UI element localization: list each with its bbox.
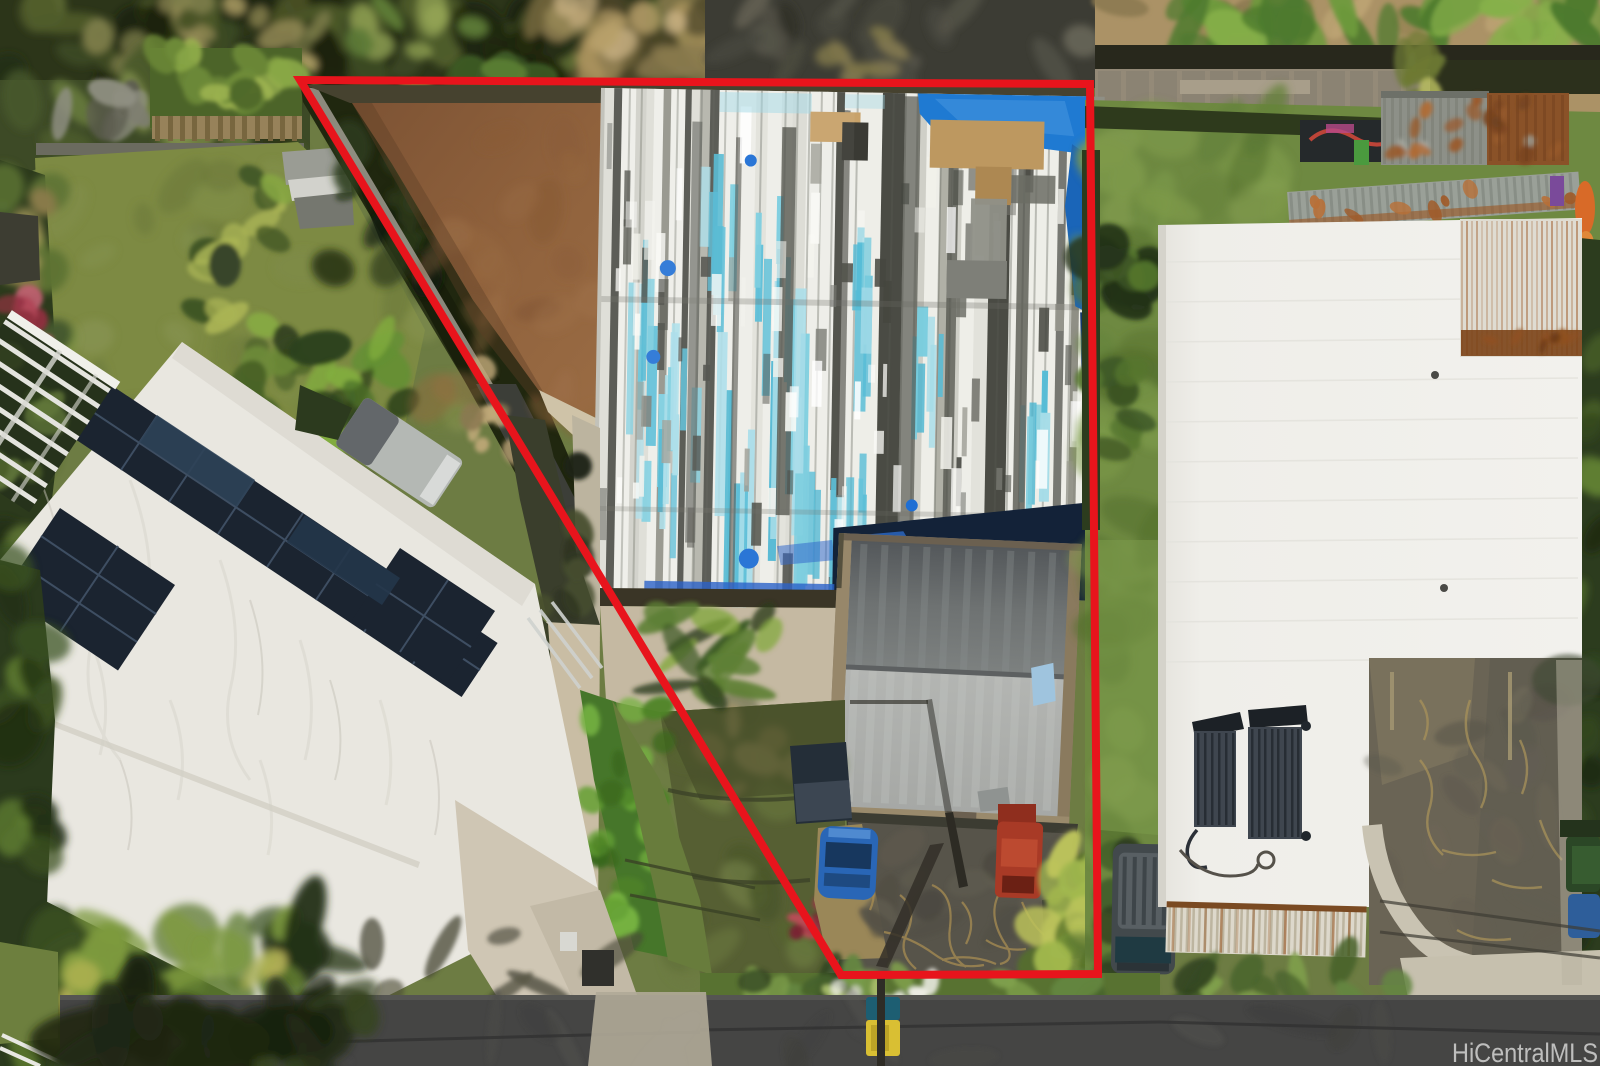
- svg-text:HiCentralMLS: HiCentralMLS: [1452, 1038, 1598, 1066]
